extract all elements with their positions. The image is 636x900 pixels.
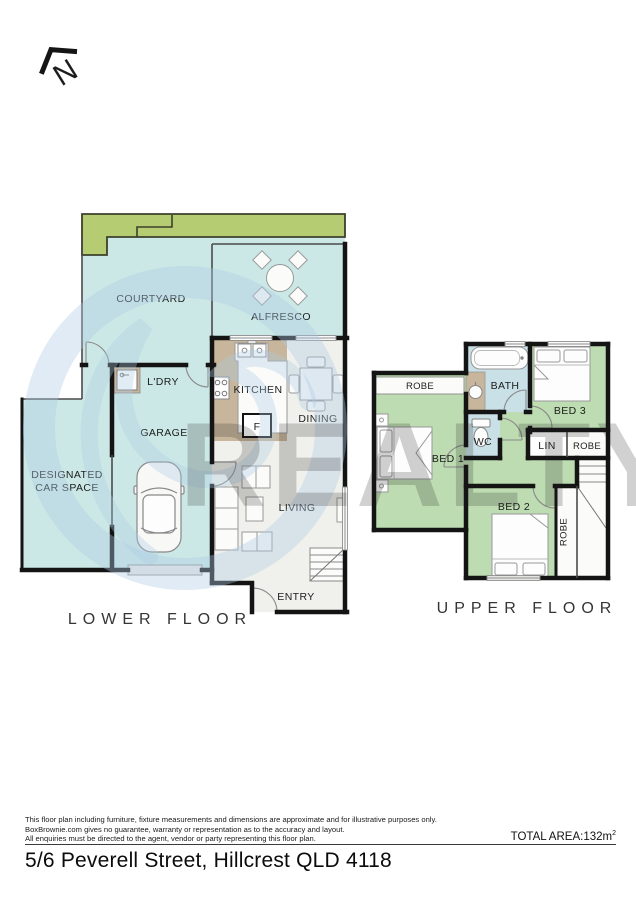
stairs-lower bbox=[310, 548, 344, 581]
north-arrow-icon: N bbox=[35, 40, 91, 97]
floorplan-page: F bbox=[0, 0, 636, 900]
basin-icon bbox=[469, 386, 482, 399]
bath-label: BATH bbox=[491, 380, 520, 392]
total-area: TOTAL AREA:132m2 bbox=[511, 830, 616, 843]
upper-floor-title: UPPER FLOOR bbox=[437, 600, 618, 617]
footer-rule bbox=[25, 844, 616, 845]
laundry-label: L'DRY bbox=[147, 376, 179, 388]
address: 5/6 Peverell Street, Hillcrest QLD 4118 bbox=[25, 849, 392, 873]
stove-icon bbox=[213, 377, 229, 399]
entry-label: ENTRY bbox=[277, 591, 314, 603]
disclaimer-line-1: This floor plan including furniture, fix… bbox=[25, 815, 455, 825]
total-area-value: TOTAL AREA:132m bbox=[511, 831, 612, 843]
robe-bed1-label: ROBE bbox=[406, 381, 434, 392]
disclaimer-line-2: BoxBrownie.com gives no guarantee, warra… bbox=[25, 825, 455, 835]
disclaimer: This floor plan including furniture, fix… bbox=[25, 815, 455, 844]
bed3-icon bbox=[534, 347, 590, 401]
watermark-text: REALTY bbox=[179, 398, 636, 532]
floorplan-canvas: F bbox=[0, 0, 636, 780]
total-area-sup: 2 bbox=[612, 830, 616, 837]
north-label: N bbox=[48, 53, 84, 92]
lower-floor-title: LOWER FLOOR bbox=[68, 611, 252, 628]
disclaimer-line-3: All enquiries must be directed to the ag… bbox=[25, 834, 455, 844]
